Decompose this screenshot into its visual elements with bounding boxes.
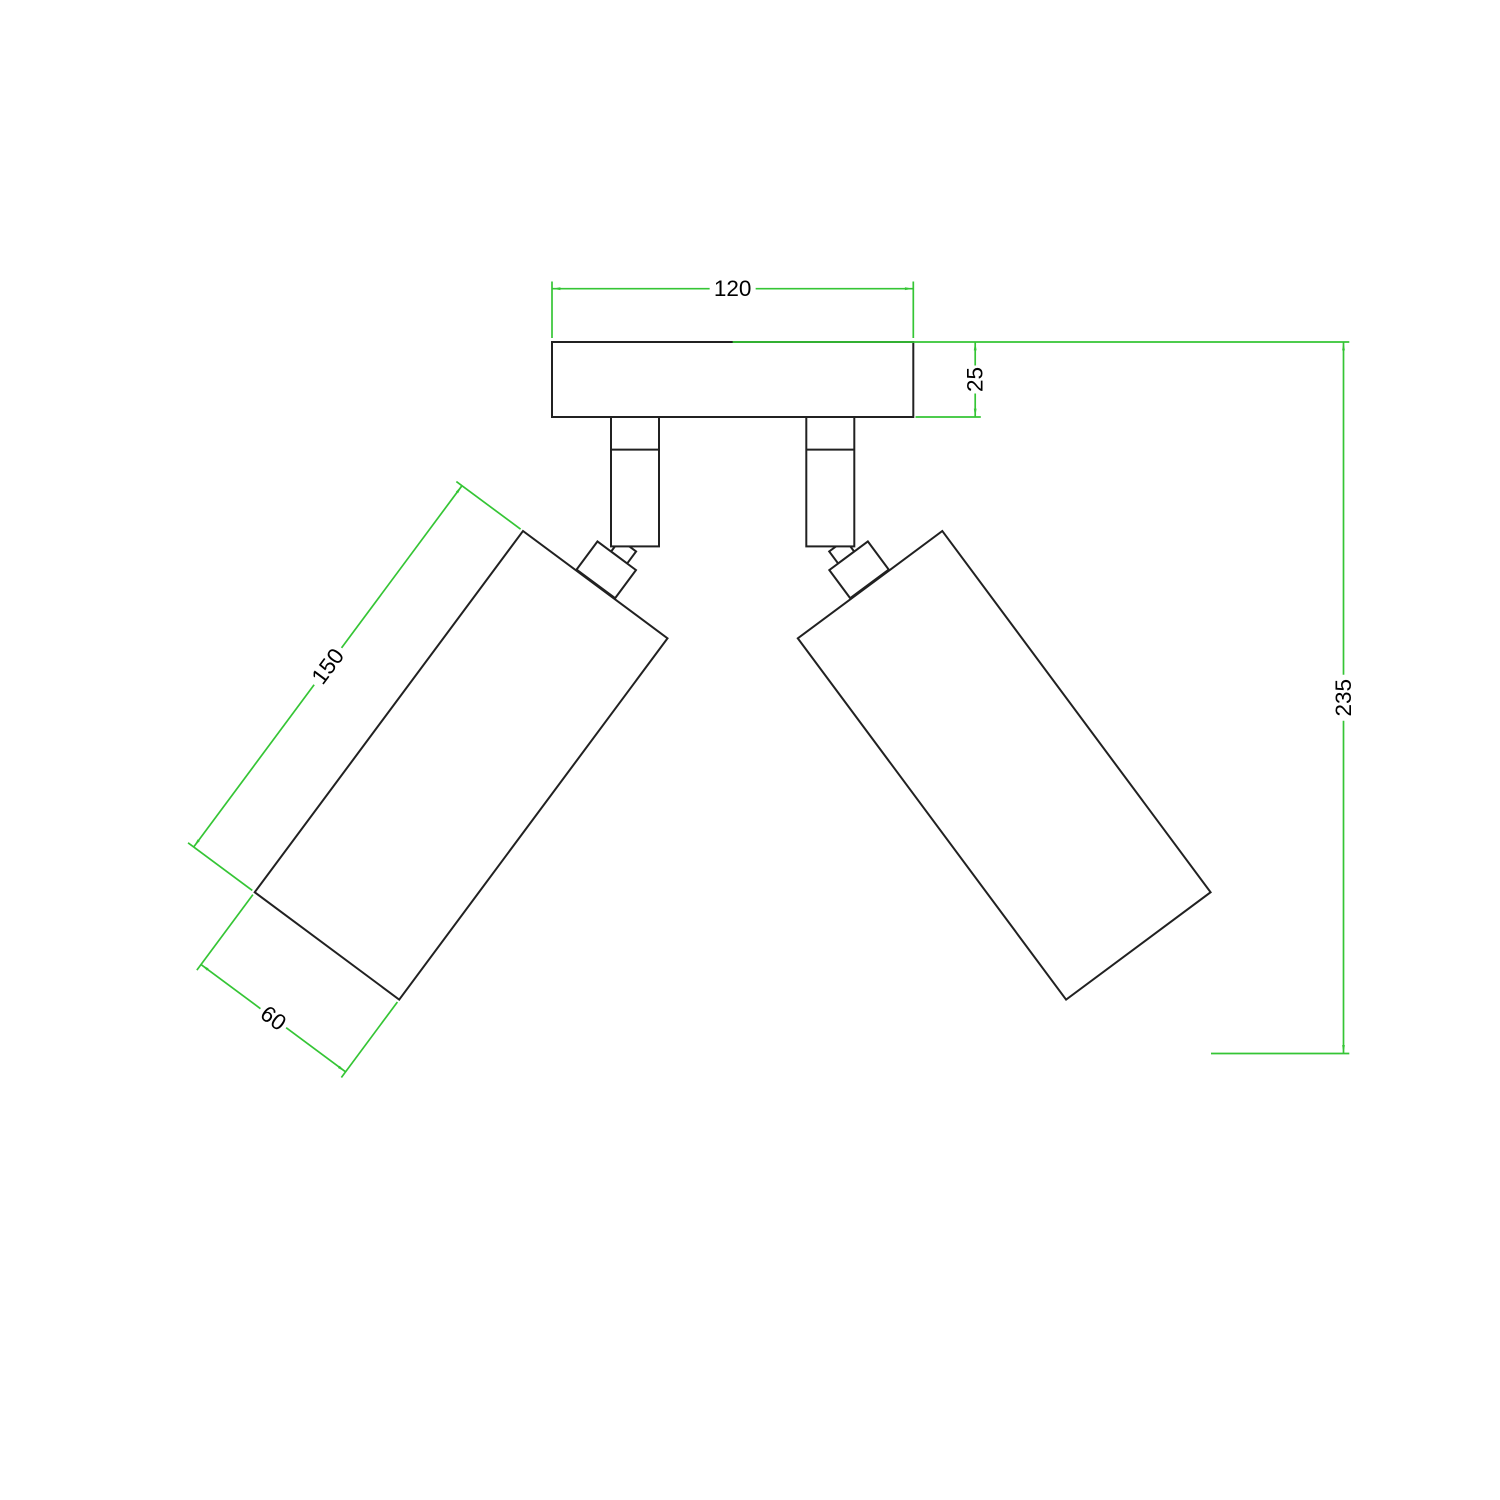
svg-text:25: 25 (963, 367, 988, 392)
svg-text:235: 235 (1331, 679, 1356, 717)
svg-text:120: 120 (714, 276, 752, 301)
